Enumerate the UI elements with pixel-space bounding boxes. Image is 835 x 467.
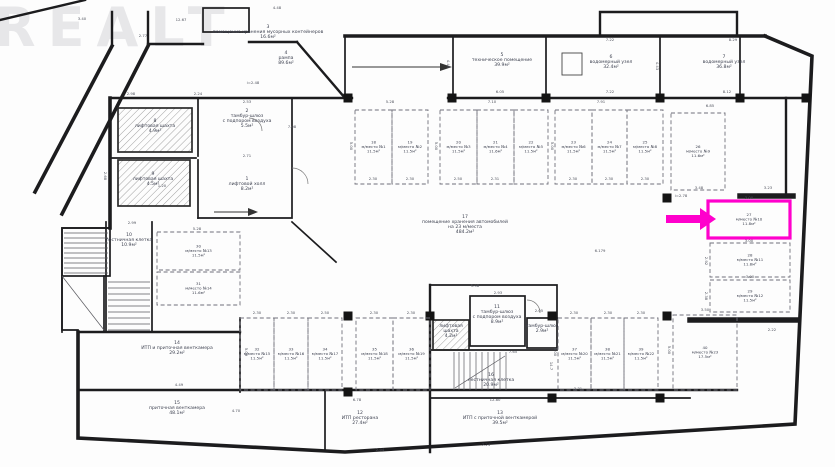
parking-stalls: 18м/место №111.5м²19м/место №211.5м²20м/… xyxy=(157,110,790,390)
room-label: 14ИТП и приточная венткамера29.2м² xyxy=(141,340,213,356)
dimension-label: 7.22 xyxy=(606,89,615,94)
stall-label: 21м/место №411.6м² xyxy=(483,140,508,154)
stall-label: 24м/место №711.5м² xyxy=(597,140,622,154)
door-arc xyxy=(292,168,308,184)
dimension-label: 2.30 xyxy=(641,176,650,181)
dimension-label: 3.00 xyxy=(746,274,755,279)
dimension-label: 2.30 xyxy=(569,176,578,181)
dimension-label: 2.30 xyxy=(369,176,378,181)
dimension-label: i=2.78 xyxy=(675,193,688,198)
stall-label: 31м/место №1411.6м² xyxy=(185,281,212,295)
dimension-labels: 3.4012.674.482.772.982.242.532.711.207.0… xyxy=(78,5,777,452)
stall-label: 27м/место №1011.8м² xyxy=(736,212,763,226)
stall-label: 18м/место №111.5м² xyxy=(361,140,386,154)
fixtures xyxy=(249,53,582,313)
room-label: 6водомерный узел32.4м² xyxy=(590,54,633,70)
dimension-label: 14.7 xyxy=(549,362,554,371)
dimension-label: 3.50 xyxy=(701,307,710,312)
stall-label: 26м/место №911.6м² xyxy=(686,144,711,158)
floor-plan-drawing: REALT xyxy=(0,0,835,467)
room-label: 17помещение хранения автомобилейна 23 м/… xyxy=(422,214,508,235)
dimension-label: 5.28 xyxy=(193,226,202,231)
dimension-label: 2.30 xyxy=(570,310,579,315)
dimension-label: 5.00 xyxy=(434,142,439,151)
dimension-label: 2.30 xyxy=(287,310,296,315)
stall-label: 30м/место №1311.5м² xyxy=(185,244,212,258)
stall-label: 39м/место №2211.5м² xyxy=(628,347,655,361)
room-label: 13ИТП с приточной венткамерой39.5м² xyxy=(463,410,537,426)
stall-label: 33м/место №1611.5м² xyxy=(278,347,305,361)
room-label: тамбур-шлюз2.9м² xyxy=(526,323,559,334)
dimension-label: 5.98 xyxy=(471,283,480,288)
room-label: 16лестничная клетка20.9м² xyxy=(468,372,515,388)
dimension-label: 7.10 xyxy=(488,99,497,104)
dimension-label: 5.00 xyxy=(667,346,672,355)
stall-label: 23м/место №611.5м² xyxy=(561,140,586,154)
stall-label: 40м/место №2317.5м² xyxy=(692,345,719,359)
dimension-label: 2.99 xyxy=(128,220,137,225)
dimension-label: 3.00 xyxy=(745,195,754,200)
stall-label: 19м/место №211.5м² xyxy=(398,140,423,154)
dimension-label: 1.20 xyxy=(158,183,167,188)
water-meter-fixture xyxy=(562,53,582,75)
dimension-label: 2.30 xyxy=(407,310,416,315)
dimension-label: 5.00 xyxy=(550,142,555,151)
dimension-label: 7.08 xyxy=(288,124,297,129)
stall-label: 22м/место №511.5м² xyxy=(519,140,544,154)
walls xyxy=(0,0,812,452)
stall-label: 37м/место №2011.5м² xyxy=(561,347,588,361)
dimension-label: 3.23 xyxy=(764,185,773,190)
dimension-label: 5.00 xyxy=(553,348,558,357)
dimension-label: 2.94 xyxy=(376,447,385,452)
drive-arrows xyxy=(214,63,452,216)
dimension-label: 7.65 xyxy=(509,349,518,354)
room-label: 2тамбур-шлюзс подпором воздуха5.5м² xyxy=(223,108,272,129)
dimension-label: 6.78 xyxy=(353,397,362,402)
dimension-label: 8.12 xyxy=(723,89,732,94)
dimension-label: 2.38 xyxy=(704,292,709,301)
dimension-label: 6.179 xyxy=(595,248,606,253)
dimension-label: 7.22 xyxy=(606,37,615,42)
stall-label: 29м/место №1211.5м² xyxy=(737,289,764,303)
stair-treads xyxy=(64,233,506,390)
room-label: 7водомерный узел36.8м² xyxy=(703,54,746,70)
dimension-label: 2.77 xyxy=(139,33,148,38)
dimension-label: 3.31 xyxy=(574,386,583,391)
stall-label: 28м/место №1111.8м² xyxy=(737,253,764,267)
dimension-label: 6.05 xyxy=(496,89,505,94)
dimension-label: 2.30 xyxy=(370,310,379,315)
dimension-label: 2.71 xyxy=(243,153,252,158)
dimension-label: 2.30 xyxy=(604,310,613,315)
stall-label: 20м/место №311.5м² xyxy=(446,140,471,154)
stall-label: 34м/место №1711.5м² xyxy=(312,347,339,361)
dimension-label: 2.53 xyxy=(243,99,252,104)
dimension-label: 5.00 xyxy=(349,142,354,151)
dimension-label: 5.28 xyxy=(386,99,395,104)
stall-label: 35м/место №1811.5м² xyxy=(361,347,388,361)
room-label: 4рампа89.6м² xyxy=(278,50,294,66)
dimension-label: 3.40 xyxy=(78,16,87,21)
dimension-label: 3.00 xyxy=(745,238,754,243)
dimension-label: 4.48 xyxy=(273,5,282,10)
dimension-label: 2.30 xyxy=(253,310,262,315)
dimension-label: 6.85 xyxy=(706,103,715,108)
dimension-label: 7.91 xyxy=(597,99,606,104)
room-label: 11тамбур-шлюзс подпором воздуха8.9м² xyxy=(473,304,522,325)
dimension-label: 2.50 xyxy=(321,310,330,315)
dimension-label: 2.30 xyxy=(637,310,646,315)
dimension-label: 2.92 xyxy=(704,257,709,266)
dimension-label: 12.67 xyxy=(176,17,187,22)
dimension-label: 8.29 xyxy=(729,37,738,42)
dimension-label: 2.05 xyxy=(535,308,544,313)
room-label: 1лифтовой холл8.2м² xyxy=(229,176,266,192)
dimension-label: 2.30 xyxy=(605,176,614,181)
room-label: 5техническое помещение39.9м² xyxy=(472,52,532,68)
dimension-label: 4.70 xyxy=(232,408,241,413)
dimension-label: 4.43 xyxy=(655,62,660,71)
stall-label: 25м/место №811.5м² xyxy=(633,140,658,154)
dimension-label: 2.22 xyxy=(768,327,777,332)
stall-label: 38м/место №2111.5м² xyxy=(594,347,621,361)
dimension-label: 12.80 xyxy=(490,397,501,402)
dimension-label: 2.50 xyxy=(454,176,463,181)
room-label: 10лестничная клетка10.9м² xyxy=(106,232,153,248)
room-label: 12ИТП ресторана27.4м² xyxy=(342,410,379,426)
dimension-label: 4.49 xyxy=(175,382,184,387)
room-label: 15приточная венткамера48.1м² xyxy=(149,400,205,416)
dimension-label: 2.93 xyxy=(494,290,503,295)
dimension-label: 4.46 xyxy=(446,60,451,69)
stall-label: 36м/место №1911.5м² xyxy=(398,347,425,361)
room-labels: 1лифтовой холл8.2м²2тамбур-шлюзс подпоро… xyxy=(106,24,746,426)
floor-plan-page: REALT xyxy=(0,0,835,467)
watermark-text: REALT xyxy=(0,0,237,59)
dimension-label: 5.00 xyxy=(244,348,249,357)
dimension-label: 2.30 xyxy=(406,176,415,181)
dimension-label: i=2.48 xyxy=(247,80,260,85)
dimension-label: 7.24 xyxy=(482,442,491,447)
dimension-label: 3.48 xyxy=(695,185,704,190)
dimension-label: 2.24 xyxy=(194,91,203,96)
dimension-label: 2.31 xyxy=(491,176,500,181)
dimension-label: 2.68 xyxy=(103,172,108,181)
dimension-label: 2.98 xyxy=(127,91,136,96)
